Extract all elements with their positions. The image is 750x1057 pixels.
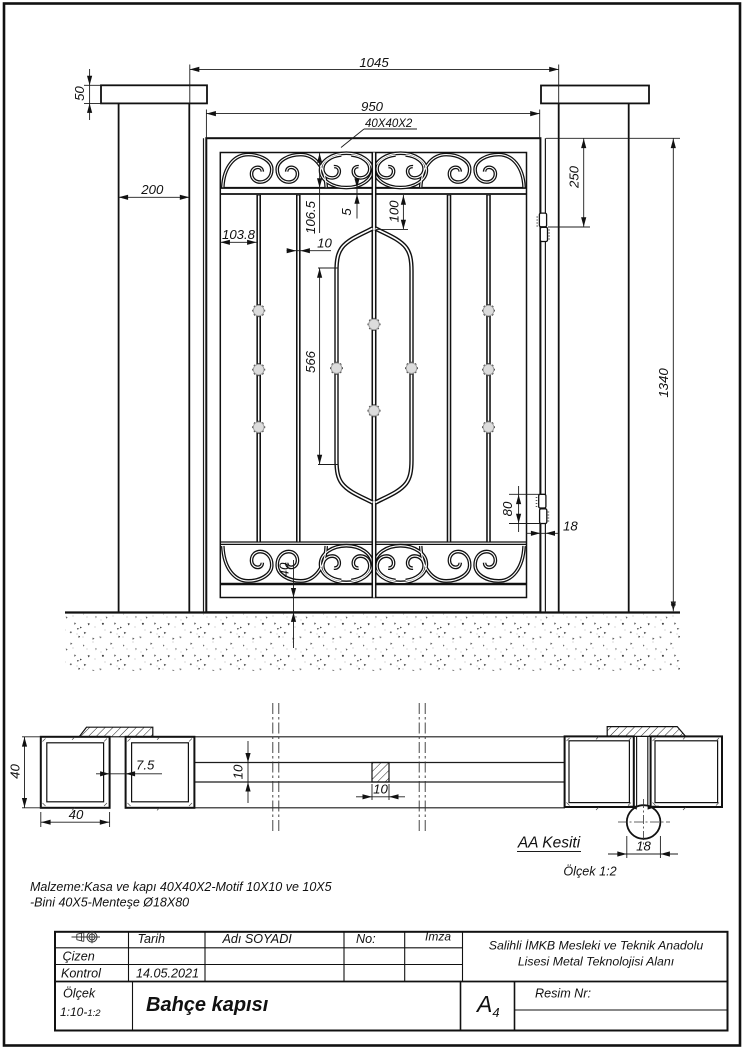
svg-text:Kontrol: Kontrol [61,967,102,981]
svg-text:5: 5 [339,208,354,216]
svg-text:Tarih: Tarih [138,932,166,946]
svg-text:18: 18 [636,839,651,854]
svg-text:103.8: 103.8 [222,227,256,242]
svg-text:250: 250 [567,165,582,189]
svg-text:40: 40 [8,764,23,779]
svg-text:-Bini 40X5-Menteşe Ø18X80: -Bini 40X5-Menteşe Ø18X80 [30,896,189,910]
svg-text:1:10-1:2: 1:10-1:2 [60,1005,101,1019]
svg-text:AA Kesiti: AA Kesiti [517,835,581,852]
svg-text:Resim Nr:: Resim Nr: [535,987,591,1001]
svg-text:No:: No: [356,932,376,946]
svg-text:Imza: Imza [425,930,451,944]
svg-text:80: 80 [500,501,515,516]
svg-text:Ölçek 1:2: Ölçek 1:2 [563,865,616,879]
svg-text:10: 10 [317,236,332,251]
svg-text:Lisesi Metal Teknolojisi Alanı: Lisesi Metal Teknolojisi Alanı [518,955,674,969]
svg-text:200: 200 [140,182,164,197]
svg-text:18: 18 [563,519,578,534]
svg-text:566: 566 [303,350,318,373]
svg-text:Adı SOYADI: Adı SOYADI [222,932,293,946]
svg-text:1340: 1340 [656,368,671,398]
svg-text:50: 50 [72,86,87,101]
svg-text:106.5: 106.5 [303,200,318,234]
svg-text:10: 10 [231,764,246,779]
svg-text:40: 40 [277,562,292,577]
svg-text:100: 100 [387,200,402,223]
svg-text:Malzeme:Kasa ve kapı 40X40X2-M: Malzeme:Kasa ve kapı 40X40X2-Motif 10X10… [30,880,332,894]
svg-text:Salihli İMKB Mesleki ve Teknik: Salihli İMKB Mesleki ve Teknik Anadolu [489,939,704,953]
svg-text:40X40X2: 40X40X2 [365,118,413,130]
svg-text:950: 950 [361,99,384,114]
svg-text:Ölçek: Ölçek [63,987,96,1001]
svg-text:7.5: 7.5 [136,758,155,773]
svg-text:10: 10 [373,782,388,797]
svg-text:Bahçe kapısı: Bahçe kapısı [146,994,269,1016]
svg-text:14.05.2021: 14.05.2021 [136,967,199,981]
svg-text:1045: 1045 [359,55,389,70]
svg-text:40: 40 [69,807,84,822]
svg-text:Çizen: Çizen [63,950,95,964]
